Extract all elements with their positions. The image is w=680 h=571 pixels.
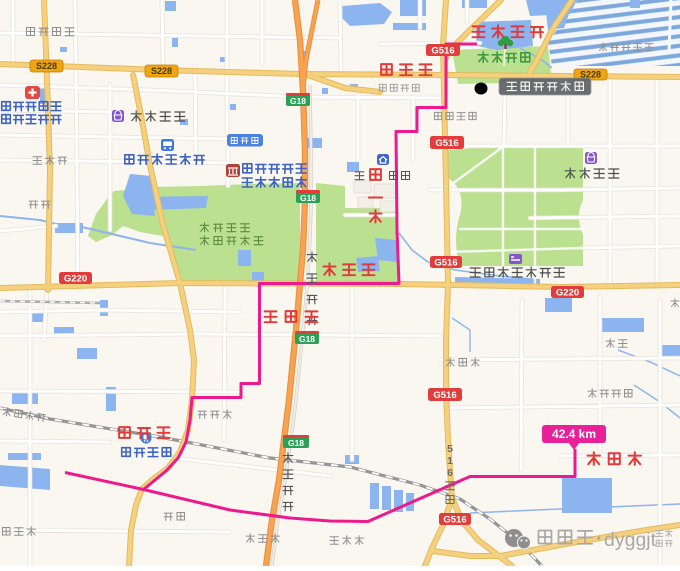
svg-text:1: 1: [447, 455, 453, 467]
svg-text:G516: G516: [431, 45, 454, 56]
svg-text:G516: G516: [443, 514, 466, 525]
svg-text:6: 6: [447, 467, 453, 479]
svg-text:G18: G18: [288, 438, 304, 448]
svg-text:5: 5: [447, 443, 453, 455]
svg-text:G516: G516: [433, 390, 456, 401]
svg-text:G18: G18: [300, 193, 316, 203]
svg-text:G18: G18: [290, 96, 306, 106]
svg-text:G220: G220: [556, 287, 579, 298]
svg-text:·: ·: [596, 528, 603, 550]
svg-text:S228: S228: [36, 61, 57, 71]
svg-text:42.4 km: 42.4 km: [552, 427, 596, 441]
svg-text:S228: S228: [151, 66, 172, 76]
svg-text:G516: G516: [434, 257, 457, 268]
svg-text:G220: G220: [64, 273, 87, 284]
svg-text:dyggjt: dyggjt: [604, 529, 657, 551]
svg-text:G516: G516: [435, 138, 458, 149]
svg-text:G18: G18: [299, 334, 315, 344]
